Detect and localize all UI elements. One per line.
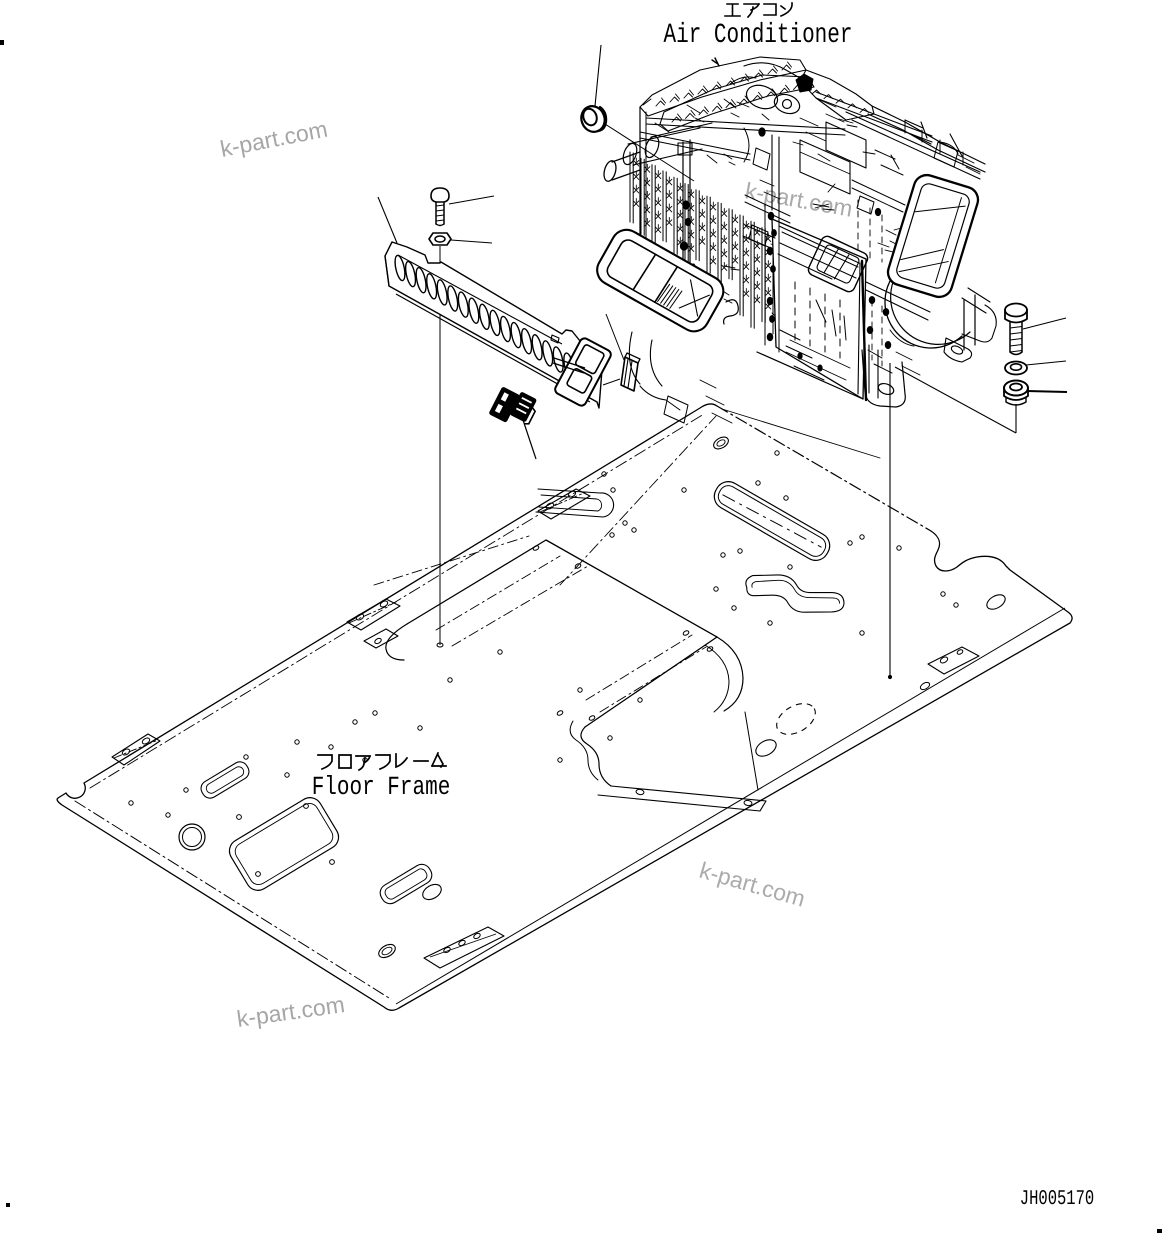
svg-text:JH005170: JH005170 <box>1020 1187 1094 1211</box>
svg-text:Air Conditioner: Air Conditioner <box>664 21 853 52</box>
svg-text:Floor Frame: Floor Frame <box>312 773 451 803</box>
